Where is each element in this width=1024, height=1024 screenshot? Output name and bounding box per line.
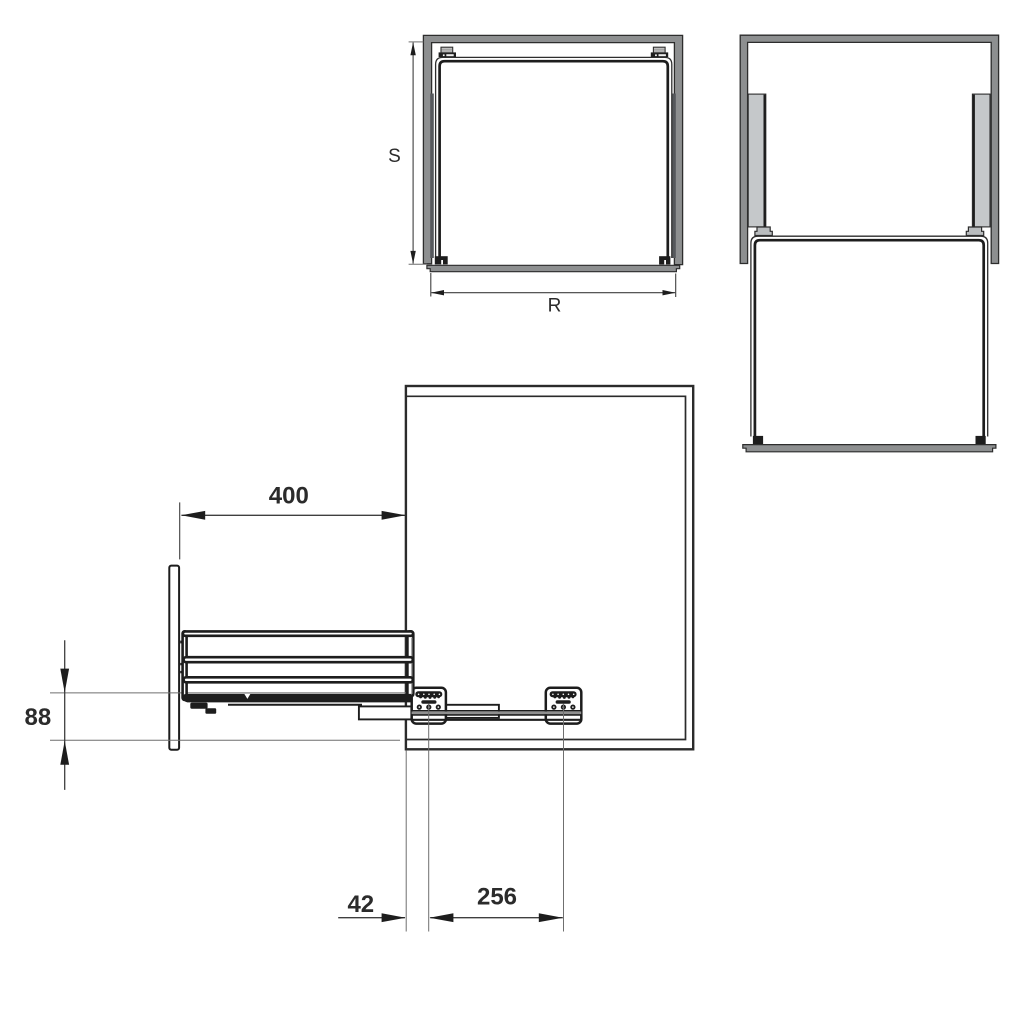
svg-text:400: 400 [269,483,309,510]
svg-text:256: 256 [477,884,517,911]
svg-text:S: S [388,146,401,167]
svg-text:R: R [548,296,562,317]
svg-text:42: 42 [347,891,374,918]
svg-text:88: 88 [25,704,52,731]
